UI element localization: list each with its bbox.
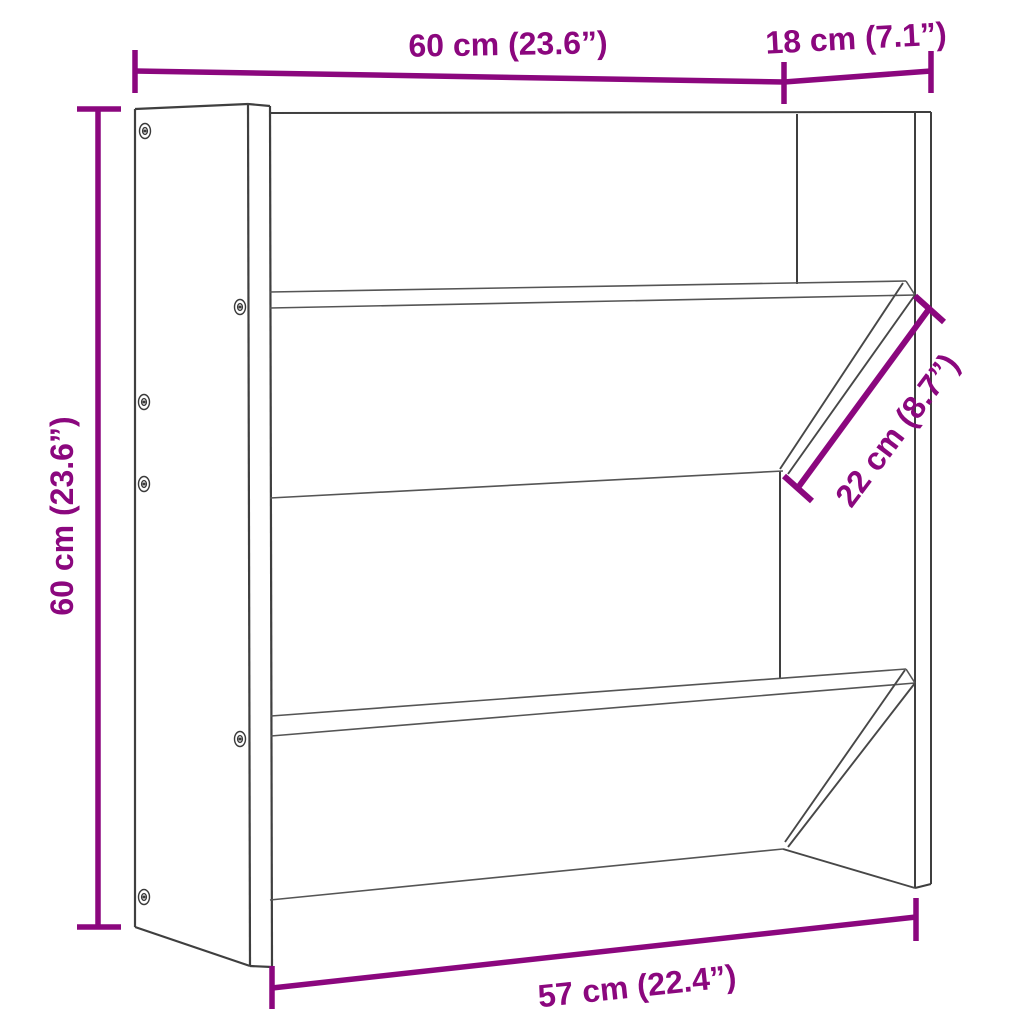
bottom-shelf-slope-upper xyxy=(785,670,905,842)
left-side-panel xyxy=(135,104,272,967)
dimension-label-top-width: 60 cm (23.6”) xyxy=(408,24,608,63)
bottom-shelf-underside-right xyxy=(783,849,915,888)
back-panel-top-edge xyxy=(270,112,913,113)
dimension-shelf-diagonal: 22 cm (8.7”) xyxy=(784,296,966,513)
right-panel-bottom-edge xyxy=(915,884,931,888)
screw-icon xyxy=(139,395,150,410)
right-side-panel xyxy=(913,112,931,888)
bottom-shelf-tip-edge xyxy=(906,669,915,683)
back-panel xyxy=(270,112,913,678)
left-panel-top-edge xyxy=(135,104,248,109)
screw-icon xyxy=(139,477,150,492)
bottom-shelf xyxy=(270,669,915,900)
dimension-annotations: 60 cm (23.6”) 18 cm (7.1”) 60 cm (23.6”)… xyxy=(44,15,966,1014)
dimension-top-width: 60 cm (23.6”) xyxy=(135,24,784,93)
screw-icon xyxy=(140,124,151,139)
dimension-label-left-height: 60 cm (23.6”) xyxy=(44,416,80,615)
left-panel-side-bottom-edge xyxy=(250,966,272,967)
bottom-shelf-slope-lower xyxy=(788,683,915,847)
screw-icon xyxy=(235,300,246,315)
bottom-shelf-underside-left xyxy=(270,849,783,900)
shoe-rack-dimension-diagram: 60 cm (23.6”) 18 cm (7.1”) 60 cm (23.6”)… xyxy=(0,0,1024,1024)
bottom-shelf-top-edge xyxy=(271,669,906,716)
dimension-label-shelf-diagonal: 22 cm (8.7”) xyxy=(828,347,966,514)
dim-line xyxy=(135,71,784,82)
dimension-left-height: 60 cm (23.6”) xyxy=(44,109,121,927)
dimension-label-top-depth: 18 cm (7.1”) xyxy=(764,15,947,60)
shoe-rack-outline xyxy=(135,104,931,967)
dimension-label-bottom-width: 57 cm (22.4”) xyxy=(536,958,738,1015)
middle-shelf-top-edge xyxy=(270,281,906,292)
screw-icon xyxy=(139,890,150,905)
screw-icon xyxy=(235,732,246,747)
left-panel-side-top-edge xyxy=(248,104,270,106)
diagram-canvas: 60 cm (23.6”) 18 cm (7.1”) 60 cm (23.6”)… xyxy=(0,0,1024,1024)
dimension-bottom-width: 57 cm (22.4”) xyxy=(272,898,916,1014)
left-panel-side-right-edge xyxy=(270,106,272,967)
screw-icons xyxy=(139,124,246,905)
dimension-top-depth: 18 cm (7.1”) xyxy=(764,15,947,104)
left-panel-bottom-edge xyxy=(135,927,250,966)
dim-line xyxy=(784,71,931,82)
middle-shelf-back-edge xyxy=(270,471,783,498)
middle-shelf-tip-edge xyxy=(906,281,915,295)
dim-tick xyxy=(784,476,812,501)
middle-shelf-bottom-edge xyxy=(270,295,915,308)
middle-shelf xyxy=(270,281,915,498)
left-panel-right-edge xyxy=(248,104,250,966)
